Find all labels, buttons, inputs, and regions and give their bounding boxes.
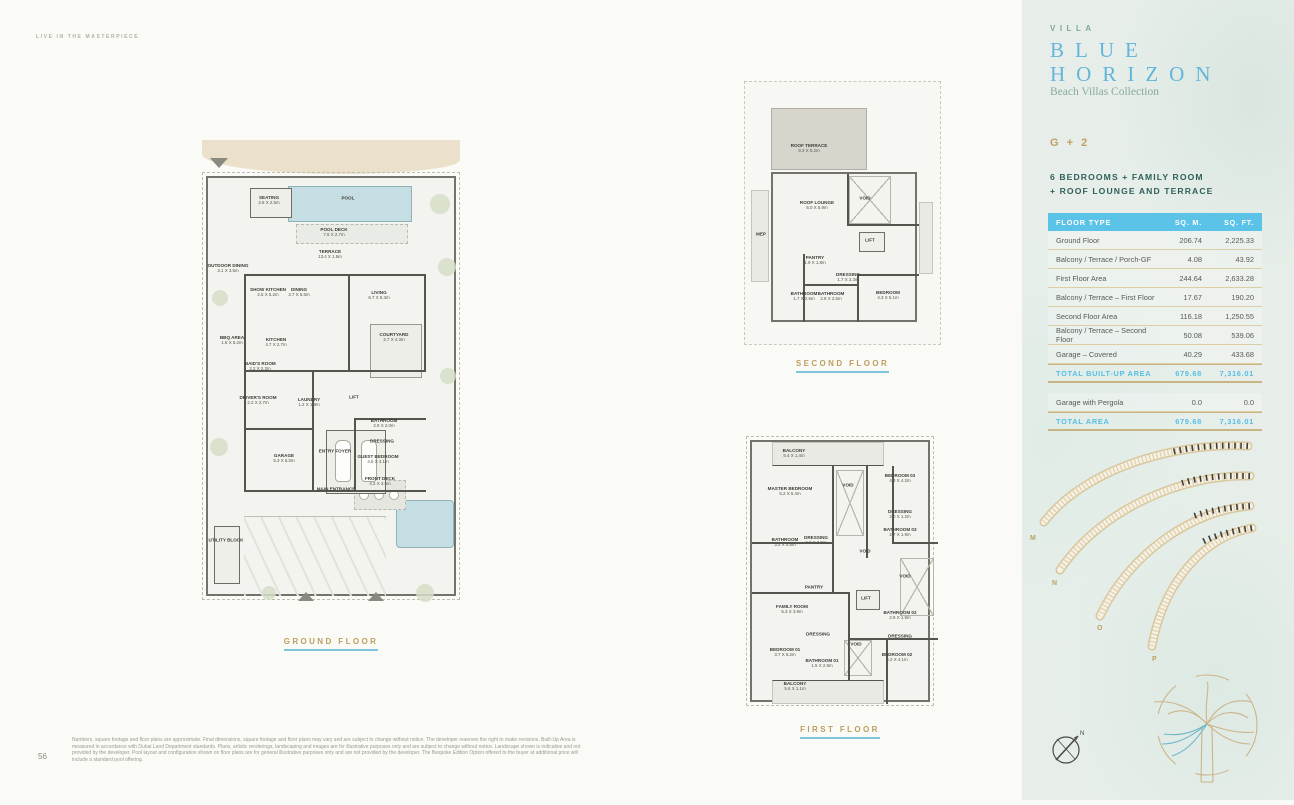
villa-eyebrow: VILLA bbox=[1050, 24, 1096, 33]
room-label: BBQ AREA1.8 X 5.2m bbox=[220, 335, 244, 345]
info-sidebar: VILLA BLUE HORIZON Beach Villas Collecti… bbox=[1022, 0, 1294, 800]
room-label: BEDROOM 024.2 X 4.1m bbox=[882, 652, 912, 662]
room-label: POOL DECK7.6 X 2.7m bbox=[320, 227, 347, 237]
table-cell: Garage – Covered bbox=[1056, 350, 1156, 359]
features-line2: + ROOF LOUNGE AND TERRACE bbox=[1050, 184, 1214, 198]
table-cell: 679.68 bbox=[1156, 417, 1202, 426]
room-label: BATHROOM1.7 X 2.6m bbox=[791, 291, 818, 301]
table-row: Garage with Pergola0.00.0 bbox=[1048, 393, 1262, 412]
frond-label-o: O bbox=[1097, 625, 1103, 632]
table-cell: 433.68 bbox=[1202, 350, 1254, 359]
room-label: FRONT DECK4.2 X 3.5m bbox=[365, 476, 395, 486]
room-label: KITCHEN4.7 X 2.7m bbox=[265, 337, 286, 347]
table-row: Balcony / Terrace – Second Floor50.08539… bbox=[1048, 326, 1262, 345]
frond-label-n: N bbox=[1052, 580, 1057, 587]
room-label: MAID'S ROOM2.2 X 2.3m bbox=[244, 361, 275, 371]
room-label: ENTRY FOYER bbox=[319, 448, 351, 453]
room-label: MASTER BEDROOM5.2 X 5.4m bbox=[768, 486, 813, 496]
room-label: LIFT bbox=[861, 595, 871, 600]
room-label: BATHROOM3.4 X 4.6m bbox=[772, 537, 799, 547]
header-floor-type: FLOOR TYPE bbox=[1056, 218, 1156, 227]
table-cell: 43.92 bbox=[1202, 255, 1254, 264]
brochure-page: LIVE IN THE MASTERPIECE bbox=[0, 0, 1294, 800]
compass-icon: N bbox=[1053, 731, 1084, 763]
palm-logo-icon bbox=[1154, 675, 1257, 782]
table-cell: Balcony / Terrace – First Floor bbox=[1056, 293, 1156, 302]
table-cell: 244.64 bbox=[1156, 274, 1202, 283]
room-label: DRESSING2.0 X 1.2m bbox=[888, 509, 912, 519]
table-cell: 0.0 bbox=[1202, 398, 1254, 407]
ground-floor-plan: SEATING2.8 X 2.5mPOOLPOOL DECK7.6 X 2.7m… bbox=[202, 140, 460, 622]
table-cell: 206.74 bbox=[1156, 236, 1202, 245]
room-label: OUTDOOR DINING3.1 X 3.5m bbox=[208, 263, 249, 273]
features-text: 6 BEDROOMS + FAMILY ROOM + ROOF LOUNGE A… bbox=[1050, 170, 1214, 198]
second-floor-label: SECOND FLOOR bbox=[796, 359, 889, 373]
eyebrow-text: LIVE IN THE MASTERPIECE bbox=[36, 34, 139, 40]
location-map: M N O P N bbox=[1022, 430, 1294, 800]
table-row: Second Floor Area116.181,250.55 bbox=[1048, 307, 1262, 326]
collection-subtitle: Beach Villas Collection bbox=[1050, 86, 1159, 98]
room-label: BEDROOM 034.3 X 4.2m bbox=[885, 473, 915, 483]
room-label: DRESSING bbox=[806, 631, 830, 636]
room-label: SEATING2.8 X 2.5m bbox=[258, 195, 279, 205]
room-label: MEP bbox=[756, 231, 766, 236]
table-cell: TOTAL BUILT-UP AREA bbox=[1056, 369, 1156, 378]
fronds-map-svg: M N O P N bbox=[1022, 430, 1294, 800]
frond-n bbox=[1060, 476, 1250, 570]
frond-o bbox=[1100, 506, 1250, 616]
table-cell: 116.18 bbox=[1156, 312, 1202, 321]
table-cell: 539.06 bbox=[1202, 331, 1254, 340]
room-label: COURTYARD2.7 X 4.3m bbox=[380, 332, 409, 342]
table-cell: Second Floor Area bbox=[1056, 312, 1156, 321]
room-label: DRESSING bbox=[888, 633, 912, 638]
table-cell: First Floor Area bbox=[1056, 274, 1156, 283]
ground-floor-label: GROUND FLOOR bbox=[284, 637, 379, 651]
room-label: VOID bbox=[850, 641, 861, 646]
first-floor-label-wrap: FIRST FLOOR bbox=[742, 719, 938, 739]
room-label: DRIVER'S ROOM2.2 X 2.7m bbox=[239, 395, 276, 405]
table-cell: 2,225.33 bbox=[1202, 236, 1254, 245]
table-cell: Ground Floor bbox=[1056, 236, 1156, 245]
room-label: BALCONY5.4 X 1.4m bbox=[783, 448, 806, 458]
room-label: GUEST BEDROOM4.5 X 4.1m bbox=[357, 454, 398, 464]
table-row: First Floor Area244.642,633.28 bbox=[1048, 269, 1262, 288]
second-floor-plan: ROOF TERRACE9.3 X 5.2mROOF LOUNGE5.0 X 5… bbox=[745, 82, 940, 344]
room-label: BATHROOM 032.7 X 1.9m bbox=[883, 527, 916, 537]
disclaimer-text: Numbers, square footage and floor plans … bbox=[72, 737, 590, 763]
header-sqm: SQ. M. bbox=[1156, 218, 1202, 227]
table-row: Ground Floor206.742,225.33 bbox=[1048, 231, 1262, 250]
table-cell: 190.20 bbox=[1202, 293, 1254, 302]
table-cell: 7,316.01 bbox=[1202, 369, 1254, 378]
room-label: VOID bbox=[842, 482, 853, 487]
area-table: FLOOR TYPE SQ. M. SQ. FT. Ground Floor20… bbox=[1048, 213, 1262, 431]
table-cell: 0.0 bbox=[1156, 398, 1202, 407]
villa-title-line2: HORIZON bbox=[1050, 62, 1222, 87]
room-label: MAIN ENTRANCE bbox=[317, 486, 356, 491]
room-label: BATHROOM2.9 X 2.0m bbox=[371, 418, 398, 428]
room-label: VOID bbox=[859, 195, 870, 200]
config-label: G + 2 bbox=[1050, 137, 1090, 149]
room-label: LIVING6.7 X 5.3m bbox=[368, 290, 389, 300]
room-label: BATHROOM2.8 X 2.5m bbox=[818, 291, 845, 301]
table-cell: 17.67 bbox=[1156, 293, 1202, 302]
room-label: VOID bbox=[859, 548, 870, 553]
room-label: LAUNDRY1.2 X 1.8m bbox=[298, 397, 320, 407]
room-label: ROOF LOUNGE5.0 X 5.9m bbox=[800, 200, 834, 210]
first-floor-label: FIRST FLOOR bbox=[800, 725, 880, 739]
room-label: VOID bbox=[899, 573, 910, 578]
room-label: LIFT bbox=[349, 394, 359, 399]
room-label: BALCONY5.6 X 1.1m bbox=[784, 681, 807, 691]
table-row: Balcony / Terrace – First Floor17.67190.… bbox=[1048, 288, 1262, 307]
room-label: UTILITY BLOCK bbox=[209, 537, 244, 542]
table-cell: Garage with Pergola bbox=[1056, 398, 1156, 407]
room-label: POOL bbox=[341, 195, 354, 200]
compass-n-label: N bbox=[1080, 731, 1084, 737]
table-cell: TOTAL AREA bbox=[1056, 417, 1156, 426]
room-label: BEDROOM 013.7 X 5.2m bbox=[770, 647, 800, 657]
room-label: LIFT bbox=[865, 237, 875, 242]
first-floor-plan: BALCONY5.4 X 1.4mMASTER BEDROOM5.2 X 5.4… bbox=[742, 432, 938, 710]
second-floor-label-wrap: SECOND FLOOR bbox=[745, 353, 940, 373]
room-label: GARAGE5.3 X 5.0m bbox=[273, 453, 294, 463]
features-line1: 6 BEDROOMS + FAMILY ROOM bbox=[1050, 170, 1214, 184]
area-table-rows: Ground Floor206.742,225.33Balcony / Terr… bbox=[1048, 231, 1262, 431]
room-label: BATHROOM 022.9 X 1.9m bbox=[883, 610, 916, 620]
header-sqft: SQ. FT. bbox=[1202, 218, 1254, 227]
room-label: FAMILY ROOM5.3 X 3.9m bbox=[776, 604, 808, 614]
table-cell: 7,316.01 bbox=[1202, 417, 1254, 426]
area-table-header: FLOOR TYPE SQ. M. SQ. FT. bbox=[1048, 213, 1262, 231]
frond-label-m: M bbox=[1030, 535, 1036, 542]
ground-floor-label-wrap: GROUND FLOOR bbox=[202, 631, 460, 651]
villa-title-line1: BLUE bbox=[1050, 38, 1149, 63]
table-row bbox=[1048, 383, 1262, 393]
room-label: TERRACE13.4 X 1.5m bbox=[318, 249, 342, 259]
table-cell: 2,633.28 bbox=[1202, 274, 1254, 283]
table-cell: Balcony / Terrace – Second Floor bbox=[1056, 326, 1156, 344]
room-label: DRESSING bbox=[370, 438, 394, 443]
room-label: ROOF TERRACE9.3 X 5.2m bbox=[791, 143, 828, 153]
room-label: PANTRY bbox=[805, 584, 823, 589]
room-label: DRESSING2.0 X 3.9m bbox=[804, 535, 828, 545]
room-label: SHOW KITCHEN2.5 X 5.2m bbox=[250, 287, 286, 297]
room-label: PANTRY1.9 X 1.8m bbox=[804, 255, 825, 265]
room-label: BATHROOM 011.5 X 2.9m bbox=[805, 658, 838, 668]
table-cell: 50.08 bbox=[1156, 331, 1202, 340]
table-row: Balcony / Terrace / Porch-GF4.0843.92 bbox=[1048, 250, 1262, 269]
room-label: DINING3.7 X 5.5m bbox=[288, 287, 309, 297]
page-number: 56 bbox=[38, 752, 47, 761]
table-cell: Balcony / Terrace / Porch-GF bbox=[1056, 255, 1156, 264]
room-label: DRESSING1.7 X 2.3m bbox=[836, 272, 860, 282]
table-cell: 40.29 bbox=[1156, 350, 1202, 359]
table-cell: 1,250.55 bbox=[1202, 312, 1254, 321]
table-cell: 4.08 bbox=[1156, 255, 1202, 264]
table-row: Garage – Covered40.29433.68 bbox=[1048, 345, 1262, 364]
room-label: BEDROOM4.3 X 5.1m bbox=[876, 290, 900, 300]
frond-p bbox=[1152, 528, 1252, 646]
frond-label-p: P bbox=[1152, 656, 1157, 663]
table-row: TOTAL BUILT-UP AREA679.687,316.01 bbox=[1048, 364, 1262, 383]
table-row: TOTAL AREA679.687,316.01 bbox=[1048, 412, 1262, 431]
table-cell: 679.68 bbox=[1156, 369, 1202, 378]
